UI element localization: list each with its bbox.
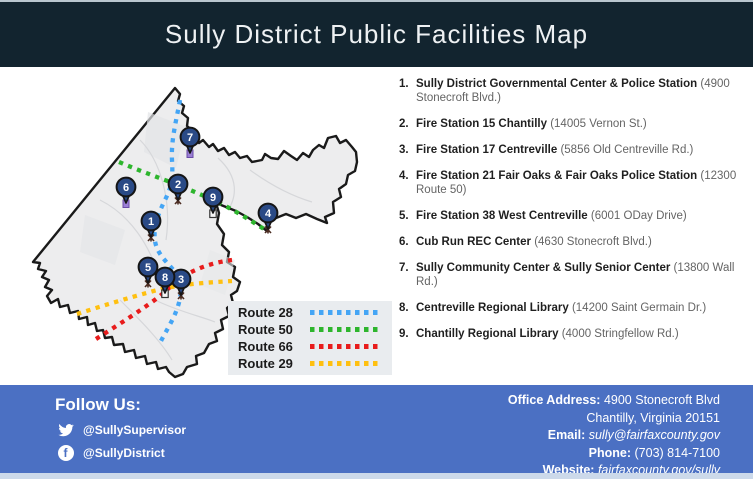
facility-number: 6. [399,235,416,249]
route-legend: Route 28Route 50Route 66Route 29 [228,301,392,375]
facility-item: 2.Fire Station 15 Chantilly (14005 Verno… [399,117,749,131]
facility-item: 8.Centreville Regional Library (14200 Sa… [399,301,749,315]
contact-label: Office Address: [508,393,604,407]
pin-number-label: 4 [265,208,272,220]
pin-number-label: 8 [162,272,168,284]
footer: Follow Us: @SullySupervisorf@SullyDistri… [0,385,753,473]
pin-number-label: 9 [210,192,216,204]
legend-row: Route 28 [228,305,392,320]
facility-name: Cub Run REC Center [416,236,531,248]
legend-row: Route 66 [228,339,392,354]
facility-item: 4.Fire Station 21 Fair Oaks & Fair Oaks … [399,169,749,197]
facility-address: (4630 Stonecroft Blvd.) [531,236,652,248]
facility-item: 6.Cub Run REC Center (4630 Stonecroft Bl… [399,235,749,249]
facility-list: 1.Sully District Governmental Center & P… [399,77,749,353]
legend-route-label: Route 66 [238,339,302,354]
contact-value: 4900 Stonecroft Blvd [604,393,720,407]
content: 123456789 Route 28Route 50Route 66Route … [0,67,753,385]
legend-dotted-swatch [310,310,382,315]
facility-address: (5856 Old Centreville Rd.) [557,144,693,156]
facility-address: (4000 Stringfellow Rd.) [559,328,679,340]
contact-line: Email: sully@fairfaxcounty.gov [508,427,720,445]
facility-number: 4. [399,169,416,197]
contact-line: Office Address: 4900 Stonecroft Blvd [508,392,720,410]
facility-item: 5.Fire Station 38 West Centreville (6001… [399,209,749,223]
facility-name: Fire Station 21 Fair Oaks & Fair Oaks Po… [416,170,697,182]
facility-name: Fire Station 17 Centreville [416,144,557,156]
social-links: @SullySupervisorf@SullyDistrict [57,421,186,461]
twitter-icon [57,421,74,438]
facility-address: (14005 Vernon St.) [547,118,647,130]
social-handle[interactable]: @SullyDistrict [83,446,165,460]
facility-number: 9. [399,327,416,341]
facility-number: 3. [399,143,416,157]
contact-line: Chantilly, Virginia 20151 [508,410,720,428]
legend-row: Route 50 [228,322,392,337]
pin-number-label: 3 [178,274,184,286]
pin-number-label: 2 [175,179,181,191]
facebook-icon: f [57,444,74,461]
facility-number: 5. [399,209,416,223]
contact-line: Phone: (703) 814-7100 [508,445,720,463]
pin-number-label: 6 [123,182,129,194]
facility-address: (6001 ODay Drive) [588,210,687,222]
social-link-row[interactable]: f@SullyDistrict [57,444,186,461]
contact-info: Office Address: 4900 Stonecroft BlvdChan… [508,392,720,479]
legend-route-label: Route 29 [238,356,302,371]
pin-number-label: 7 [187,132,193,144]
contact-value: Chantilly, Virginia 20151 [586,411,720,425]
legend-route-label: Route 28 [238,305,302,320]
facility-address: (14200 Saint Germain Dr.) [569,302,706,314]
facility-number: 8. [399,301,416,315]
facility-number: 7. [399,261,416,289]
bottom-accent-strip [0,473,753,479]
social-link-row[interactable]: @SullySupervisor [57,421,186,438]
facility-item: 1.Sully District Governmental Center & P… [399,77,749,105]
facility-name: Chantilly Regional Library [416,328,559,340]
contact-label: Phone: [589,446,635,460]
contact-label: Email: [548,428,589,442]
facility-item: 3.Fire Station 17 Centreville (5856 Old … [399,143,749,157]
legend-dotted-swatch [310,344,382,349]
contact-value: (703) 814-7100 [635,446,720,460]
facility-number: 2. [399,117,416,131]
facility-name: Sully District Governmental Center & Pol… [416,78,697,90]
legend-dotted-swatch [310,327,382,332]
legend-dotted-swatch [310,361,382,366]
pin-number-label: 1 [148,216,154,228]
follow-us-label: Follow Us: [55,395,141,415]
infographic-page: Sully District Public Facilities Map [0,0,753,479]
facility-item: 7.Sully Community Center & Sully Senior … [399,261,749,289]
facility-name: Fire Station 38 West Centreville [416,210,588,222]
facility-name: Fire Station 15 Chantilly [416,118,547,130]
page-title: Sully District Public Facilities Map [165,19,588,50]
facility-number: 1. [399,77,416,105]
contact-value[interactable]: sully@fairfaxcounty.gov [589,428,720,442]
facility-name: Centreville Regional Library [416,302,569,314]
facility-name: Sully Community Center & Sully Senior Ce… [416,262,670,274]
facility-item: 9.Chantilly Regional Library (4000 Strin… [399,327,749,341]
pin-number-label: 5 [145,262,151,274]
legend-route-label: Route 50 [238,322,302,337]
header: Sully District Public Facilities Map [0,2,753,67]
social-handle[interactable]: @SullySupervisor [83,423,186,437]
legend-row: Route 29 [228,356,392,371]
